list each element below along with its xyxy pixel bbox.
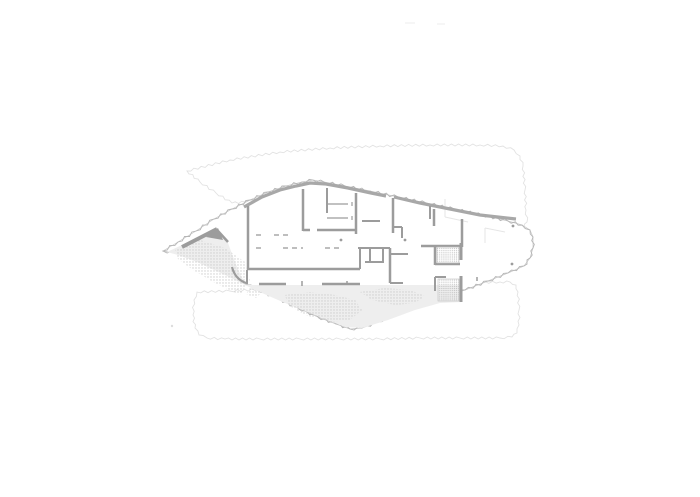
- hatched-shaft: [437, 247, 459, 263]
- floor-plan-canvas: [0, 0, 700, 497]
- column-dot: [512, 225, 515, 228]
- plot-mark: [171, 325, 173, 327]
- column-dot: [340, 239, 343, 242]
- floor-plan-drawing: [0, 0, 700, 497]
- column-dot: [404, 239, 407, 242]
- column-dot: [511, 263, 514, 266]
- hatched-shaft: [438, 279, 459, 301]
